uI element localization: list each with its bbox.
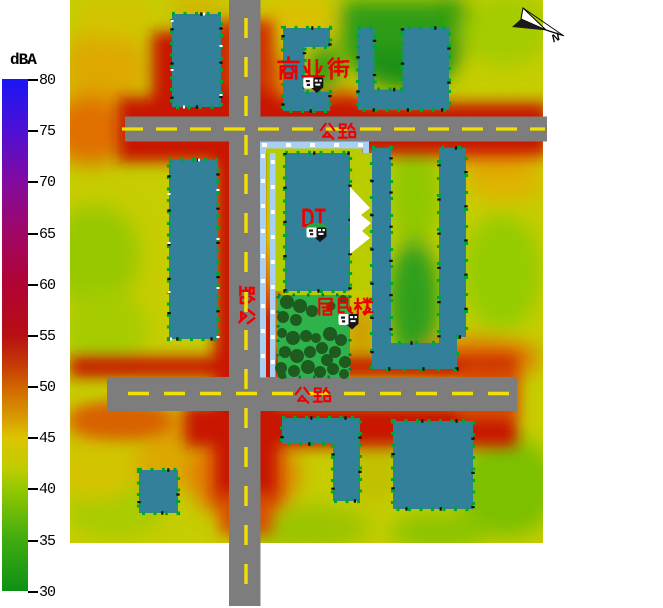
svg-text:N: N (550, 31, 563, 46)
